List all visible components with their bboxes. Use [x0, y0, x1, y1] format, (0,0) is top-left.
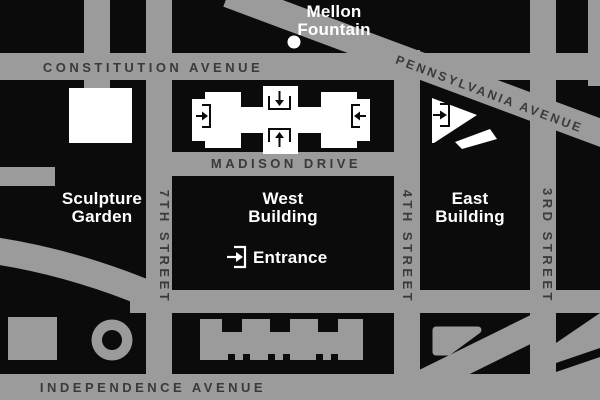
- west-building-footprint: [192, 86, 370, 154]
- mellon-fountain-label-line1: Mellon: [306, 2, 361, 21]
- constitution-avenue-label: CONSTITUTION AVENUE: [43, 60, 263, 75]
- entrance-label: Entrance: [253, 248, 327, 267]
- west-building-label-line1: West: [262, 189, 303, 208]
- street-jefferson-drive: [130, 290, 600, 313]
- map-canvas: CONSTITUTION AVENUE MADISON DRIVE INDEPE…: [0, 0, 600, 400]
- street-right-edge: [588, 0, 600, 86]
- gallery-area-map: CONSTITUTION AVENUE MADISON DRIVE INDEPE…: [0, 0, 600, 400]
- building-small-square-footprint: [8, 317, 57, 360]
- street-left-stub: [0, 167, 55, 186]
- sculpture-garden-label-line1: Sculpture: [62, 189, 142, 208]
- fourth-street-label: 4TH STREET: [400, 190, 415, 304]
- east-building-label-line1: East: [452, 189, 489, 208]
- third-street-label: 3RD STREET: [540, 188, 555, 304]
- building-square-footprint: [69, 88, 132, 143]
- east-building-label-line2: Building: [435, 207, 505, 226]
- mellon-fountain-label-line2: Fountain: [297, 20, 370, 39]
- sculpture-garden-label-line2: Garden: [72, 207, 133, 226]
- building-notched-footprint: [200, 319, 363, 360]
- building-round-footprint: [92, 320, 133, 361]
- madison-drive-label: MADISON DRIVE: [211, 156, 361, 171]
- west-building-label-line2: Building: [248, 207, 318, 226]
- independence-avenue-label: INDEPENDENCE AVENUE: [40, 380, 266, 395]
- seventh-street-label: 7TH STREET: [157, 190, 172, 304]
